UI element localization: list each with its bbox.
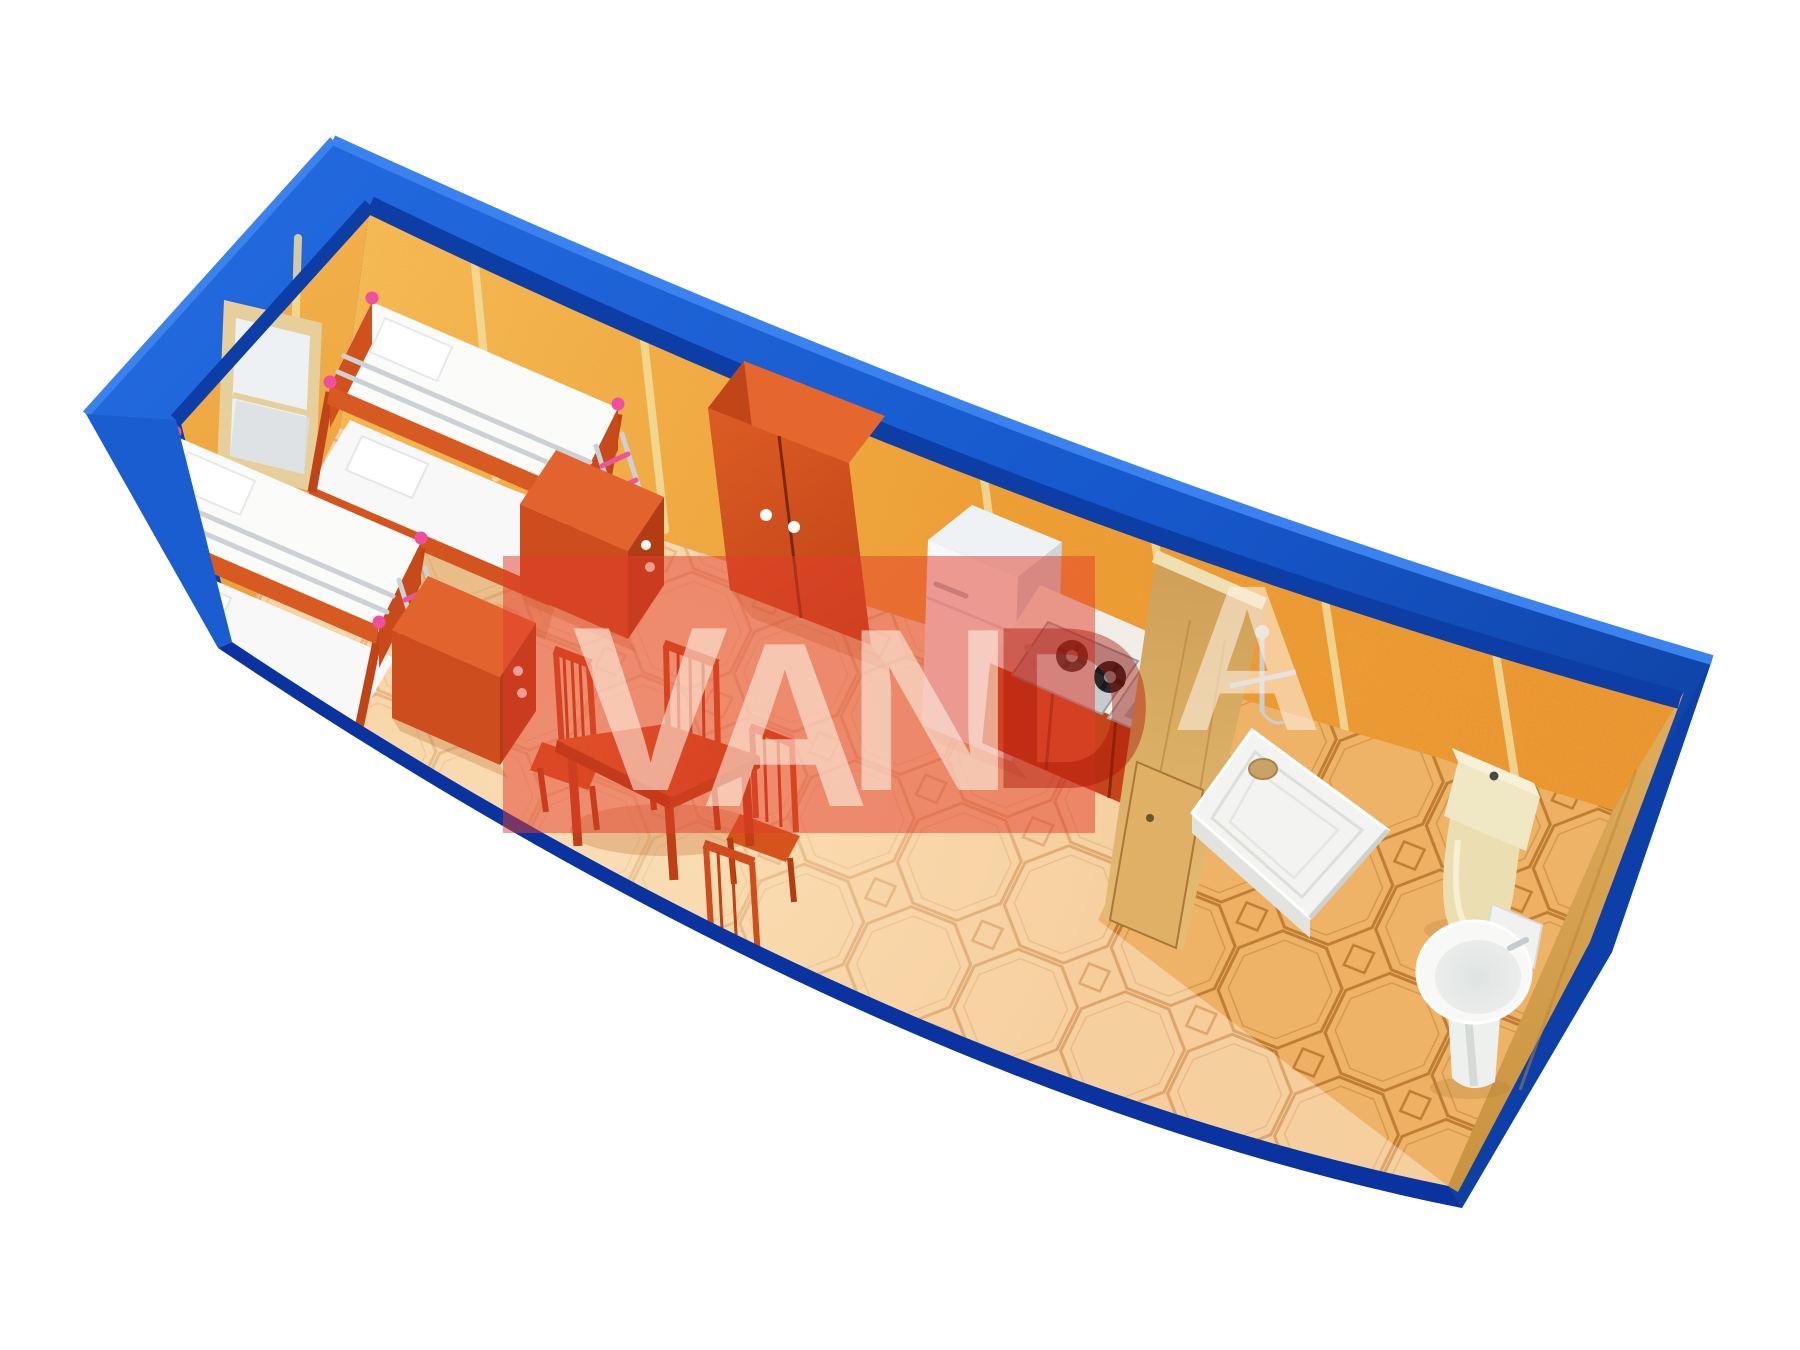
render-canvas: V A N D A [0,0,1800,1350]
watermark-letter-d: D [988,579,1156,838]
flush-button [1490,772,1499,781]
watermark-letter-a1: A [700,593,870,856]
container-house-render: V A N D A [0,0,1800,1350]
watermark-letter-a2: A [1172,543,1322,775]
